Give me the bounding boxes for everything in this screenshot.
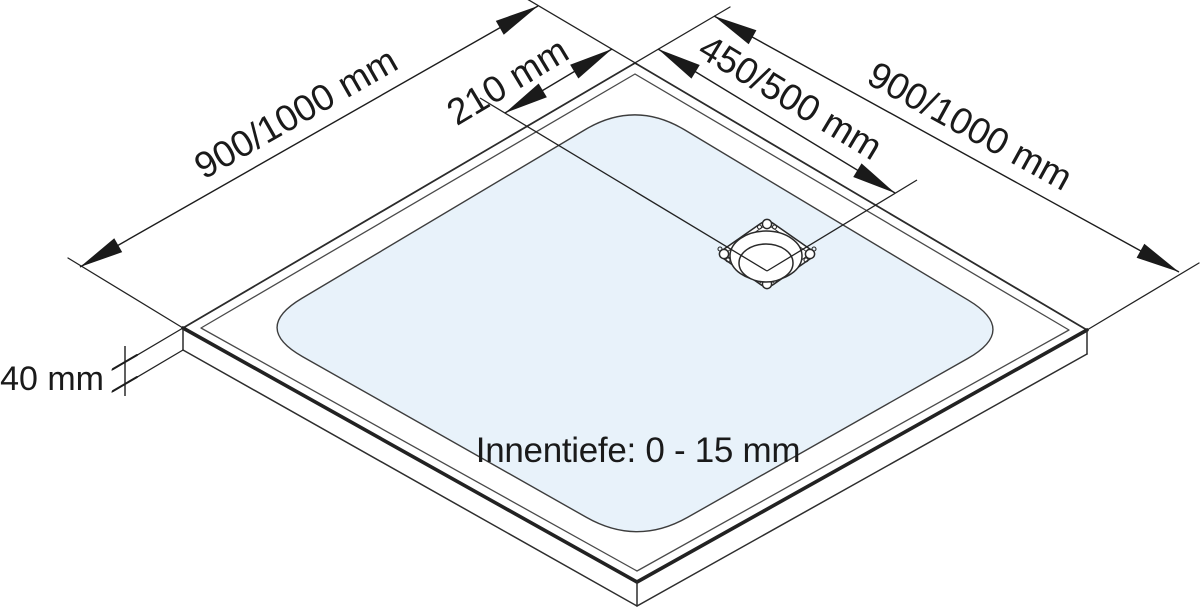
- dimension-height: 40 mm: [0, 328, 183, 398]
- tray: [183, 63, 1087, 606]
- extension-line-left-corner: [68, 258, 183, 328]
- extension-line-right-corner: [1087, 263, 1199, 330]
- dimension-label-left-edge: 900/1000 mm: [187, 39, 404, 187]
- dimension-label-right-edge: 900/1000 mm: [861, 54, 1079, 199]
- dimension-label-height: 40 mm: [0, 360, 104, 398]
- inner-depth-label: Innentiefe: 0 - 15 mm: [476, 431, 800, 470]
- shower-tray-dimension-diagram: 900/1000 mm 210 mm 450/500 mm 900/1000 m…: [0, 0, 1200, 608]
- drain-cover-dome: [739, 244, 793, 282]
- diagram-canvas: 900/1000 mm 210 mm 450/500 mm 900/1000 m…: [0, 0, 1200, 608]
